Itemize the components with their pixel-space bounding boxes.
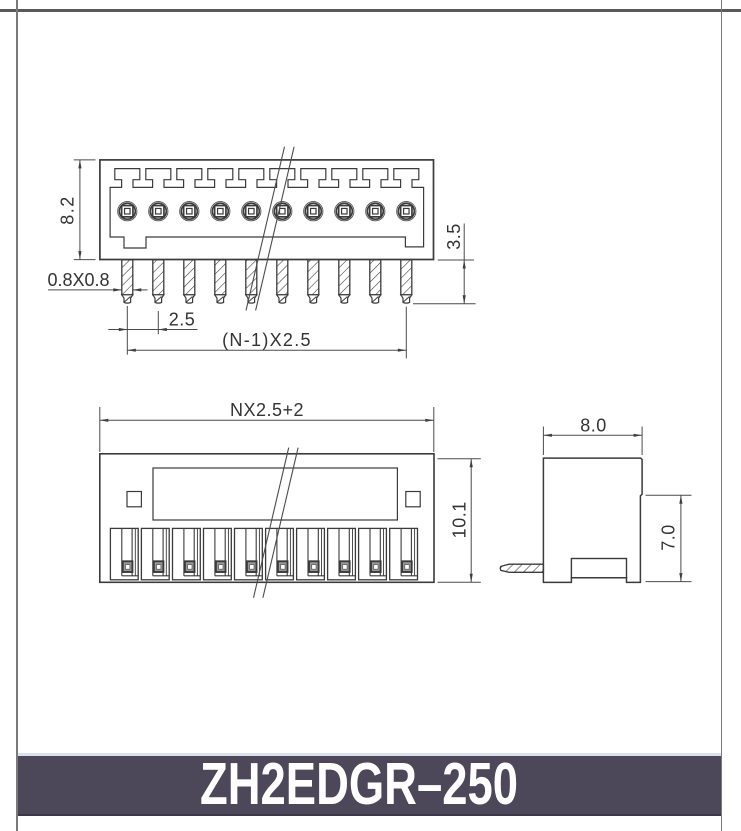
svg-text:(N-1)X2.5: (N-1)X2.5 — [222, 330, 312, 350]
svg-text:NX2.5+2: NX2.5+2 — [230, 400, 304, 420]
svg-text:10.1: 10.1 — [449, 501, 469, 538]
svg-text:2.5: 2.5 — [169, 309, 196, 329]
svg-text:8.0: 8.0 — [580, 415, 607, 435]
svg-text:0.8X0.8: 0.8X0.8 — [48, 270, 110, 290]
svg-text:3.5: 3.5 — [444, 223, 464, 250]
svg-text:8.2: 8.2 — [58, 195, 78, 225]
svg-text:7.0: 7.0 — [659, 524, 679, 551]
